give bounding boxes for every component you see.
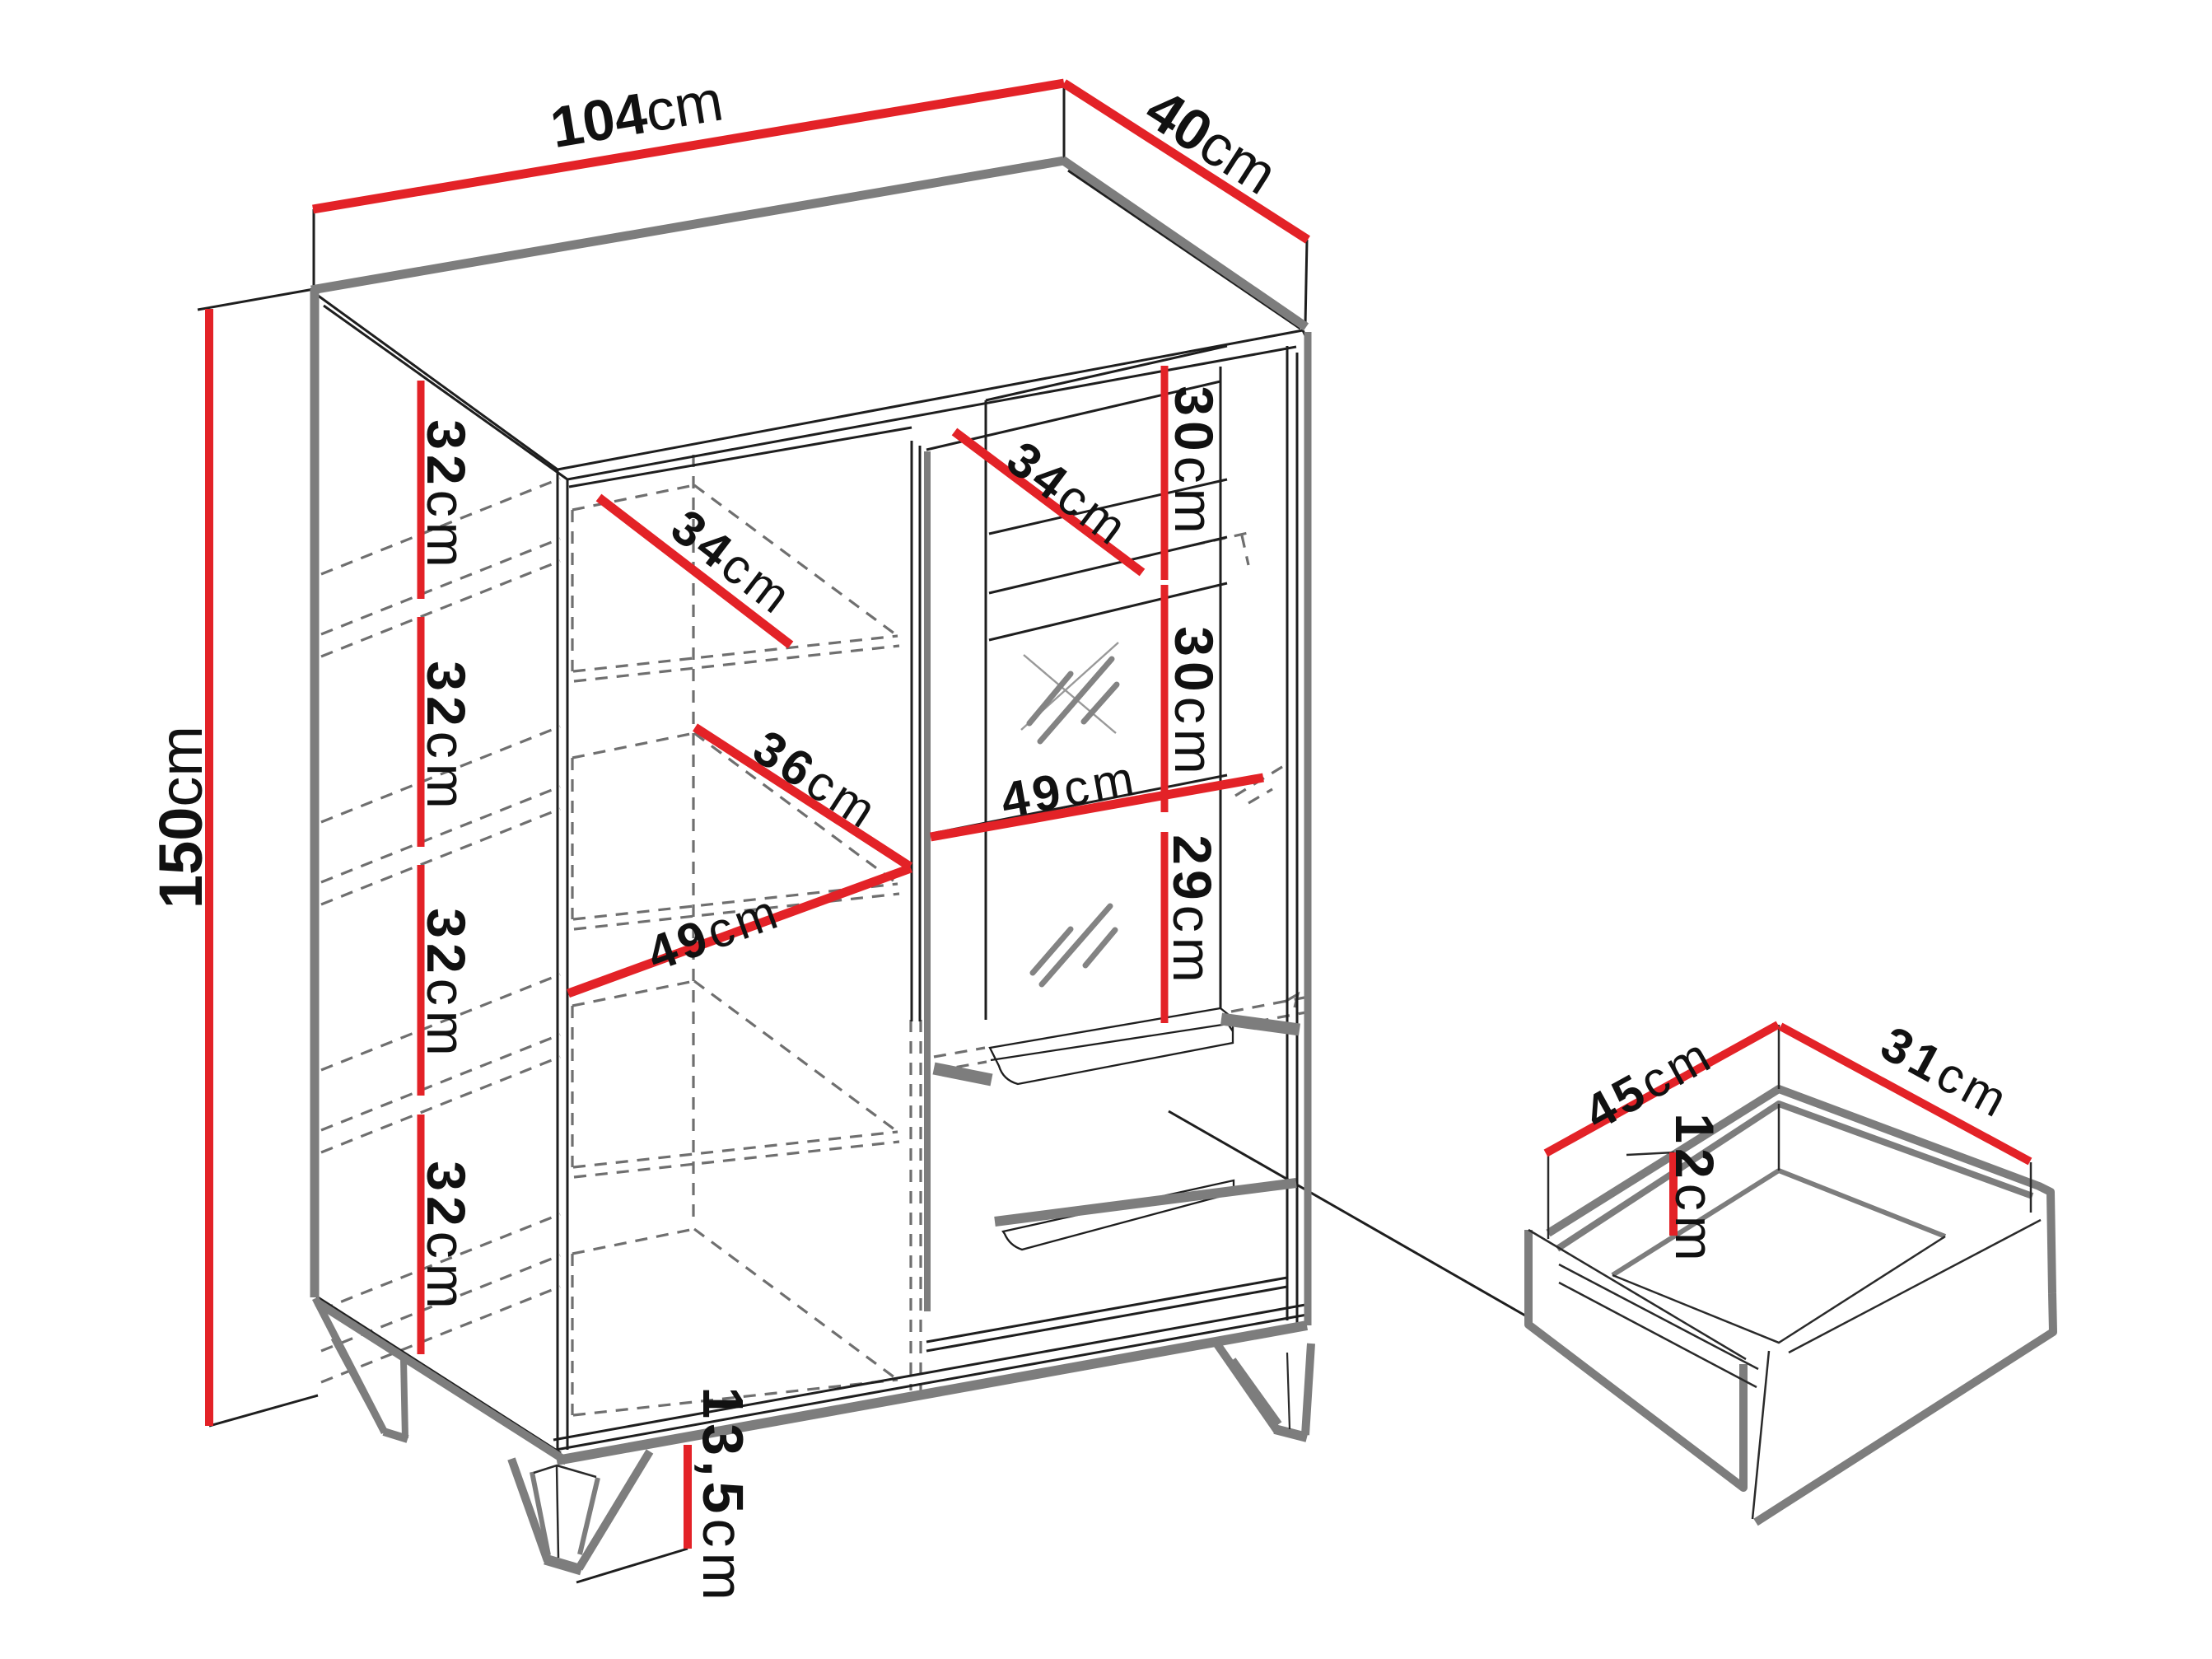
svg-text:30cm: 30cm <box>1164 386 1225 538</box>
svg-text:12cm: 12cm <box>1664 1113 1725 1265</box>
svg-text:150cm: 150cm <box>147 726 215 909</box>
svg-text:13,5cm: 13,5cm <box>691 1386 755 1605</box>
svg-text:30cm: 30cm <box>1164 626 1225 778</box>
svg-text:32cm: 32cm <box>416 661 477 813</box>
svg-text:32cm: 32cm <box>416 1161 477 1313</box>
svg-text:32cm: 32cm <box>416 908 477 1060</box>
svg-text:29cm: 29cm <box>1162 834 1223 987</box>
svg-text:32cm: 32cm <box>416 419 477 572</box>
